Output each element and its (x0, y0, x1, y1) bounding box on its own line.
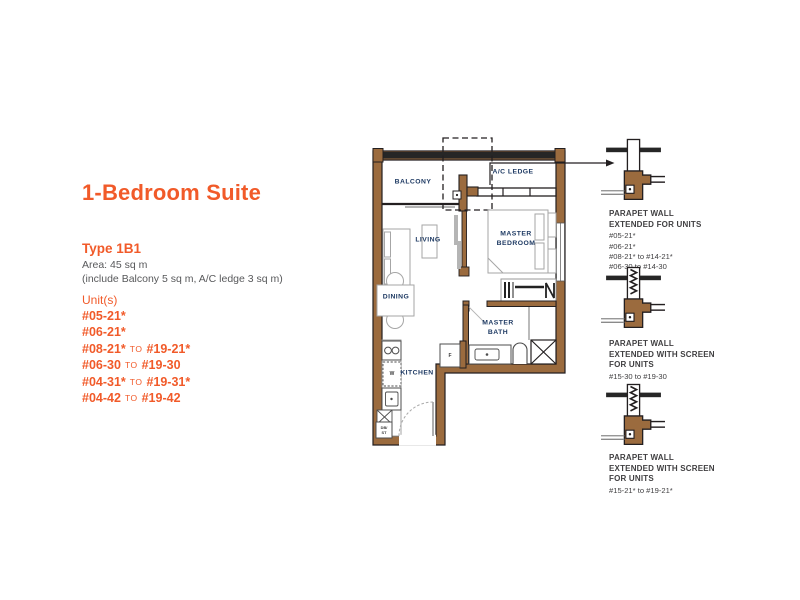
kitchen-label: KITCHEN (400, 370, 433, 377)
unit-row: #08-21*TO#19-21* (82, 341, 190, 357)
living-label: LIVING (415, 237, 440, 244)
corner-post (373, 149, 383, 163)
detail-title-line: FOR UNITS (609, 360, 749, 371)
unit-number: #04-42 (82, 391, 121, 405)
to-word: TO (125, 360, 138, 370)
master-bedroom-label-line1: MASTER (500, 231, 531, 238)
unit-number: #19-31* (146, 375, 190, 389)
units-list: #05-21* #06-21* #08-21*TO#19-21* #06-30T… (82, 308, 190, 406)
unit-row: #04-31*TO#19-31* (82, 374, 190, 390)
parapet-detail-3-drawing (600, 383, 666, 453)
parapet-junction (453, 175, 478, 211)
detail-unit: #06-21* (609, 242, 749, 252)
sink (382, 388, 401, 410)
leader-arrow (480, 150, 620, 195)
vanity (469, 345, 511, 364)
parapet-detail-2-text: PARAPET WALL EXTENDED WITH SCREEN FOR UN… (609, 339, 749, 382)
master-bath-label-line1: MASTER (482, 320, 513, 327)
unit-number: #06-30 (82, 358, 121, 372)
detail-title-line: PARAPET WALL (609, 453, 749, 464)
parapet-detail-1-text: PARAPET WALL EXTENDED FOR UNITS #05-21* … (609, 209, 749, 273)
unit-number: #19-30 (142, 358, 181, 372)
unit-number: #08-21* (82, 342, 126, 356)
master-bedroom-label-line2: BEDROOM (497, 240, 536, 247)
unit-number: #05-21* (82, 309, 126, 323)
detail-title-line: PARAPET WALL (609, 339, 749, 350)
balcony-label: BALCONY (395, 179, 432, 186)
unit-number: #06-21* (82, 325, 126, 339)
detail-unit: #05-21* (609, 231, 749, 241)
to-word: TO (130, 377, 143, 387)
page-title: 1-Bedroom Suite (82, 180, 261, 206)
fridge-box: F (440, 344, 460, 367)
unit-row: #06-21* (82, 324, 190, 340)
dining-label: DINING (383, 294, 410, 301)
detail-unit: #15-30 to #19-30 (609, 372, 749, 382)
parapet-detail-3-text: PARAPET WALL EXTENDED WITH SCREEN FOR UN… (609, 453, 749, 496)
type-label: Type 1B1 (82, 241, 141, 256)
stove (382, 341, 401, 360)
detail-unit: #08-21* to #14-21* (609, 252, 749, 262)
washer-label: W (390, 371, 395, 377)
detail-title-line: EXTENDED WITH SCREEN (609, 464, 749, 475)
detail-title-line: FOR UNITS (609, 474, 749, 485)
area-text: Area: 45 sq m (82, 259, 147, 271)
duct-box: DB/ ST (376, 422, 392, 438)
entry-door (399, 402, 436, 446)
master-bath-label-line2: BATH (488, 329, 508, 336)
to-word: TO (125, 393, 138, 403)
detail-title-line: PARAPET WALL (609, 209, 749, 220)
parapet-detail-2-drawing (600, 266, 666, 336)
detail-title-line: EXTENDED WITH SCREEN (609, 350, 749, 361)
fridge-label: F (448, 353, 451, 359)
units-heading: Unit(s) (82, 293, 117, 307)
wardrobe (501, 279, 556, 301)
parapet-detail-1-drawing (600, 138, 666, 208)
unit-row: #06-30TO#19-30 (82, 357, 190, 373)
to-word: TO (130, 344, 143, 354)
unit-number: #04-31* (82, 375, 126, 389)
detail-unit: #15-21* to #19-21* (609, 486, 749, 496)
unit-number: #19-42 (142, 391, 181, 405)
detail-title-line: EXTENDED FOR UNITS (609, 220, 749, 231)
toilet (513, 343, 527, 364)
unit-row: #04-42TO#19-42 (82, 390, 190, 406)
area-note: (include Balcony 5 sq m, A/C ledge 3 sq … (82, 273, 283, 285)
ac-unit-box (531, 340, 556, 364)
central-wall (454, 211, 469, 276)
duct-label-line2: ST (382, 430, 388, 435)
unit-number: #19-21* (146, 342, 190, 356)
unit-row: #05-21* (82, 308, 190, 324)
washer-box: W (383, 362, 401, 386)
